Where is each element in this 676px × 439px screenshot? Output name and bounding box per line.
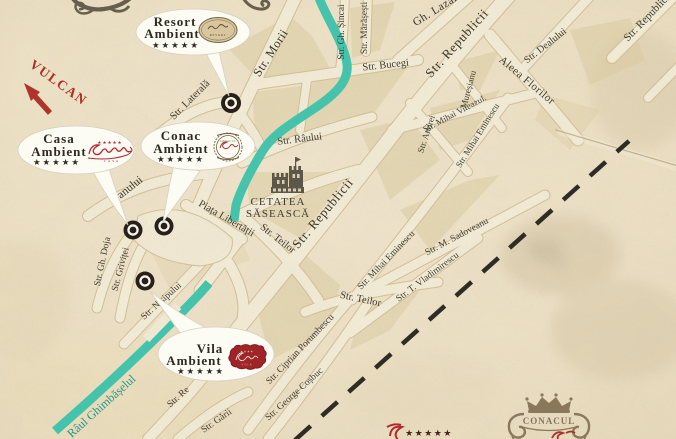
svg-text:★★★★★: ★★★★★ [152,40,200,50]
svg-text:CONACUL: CONACUL [523,416,576,426]
svg-text:Str. Gh. Șincai: Str. Gh. Șincai [337,4,347,60]
svg-text:★★★★★: ★★★★★ [33,157,81,167]
svg-text:VILA: VILA [241,363,253,367]
svg-text:SĂSEASCĂ: SĂSEASCĂ [246,208,310,220]
svg-text:★★★★★: ★★★★★ [177,366,225,376]
svg-text:CETATEA: CETATEA [250,196,305,208]
svg-text:★★★★: ★★★★ [240,350,253,354]
svg-text:Ambient: Ambient [144,26,199,41]
svg-text:CONACUL: CONACUL [220,140,236,143]
svg-text:CASA: CASA [104,159,121,163]
svg-text:★★★★★: ★★★★★ [405,428,453,438]
svg-text:.....: ..... [215,37,221,41]
svg-text:.....: ..... [225,151,232,155]
svg-text:★★★★★: ★★★★★ [97,140,122,145]
svg-text:★★★★★: ★★★★★ [157,154,205,164]
svg-text:Str. Mărășești: Str. Mărășești [360,2,370,55]
